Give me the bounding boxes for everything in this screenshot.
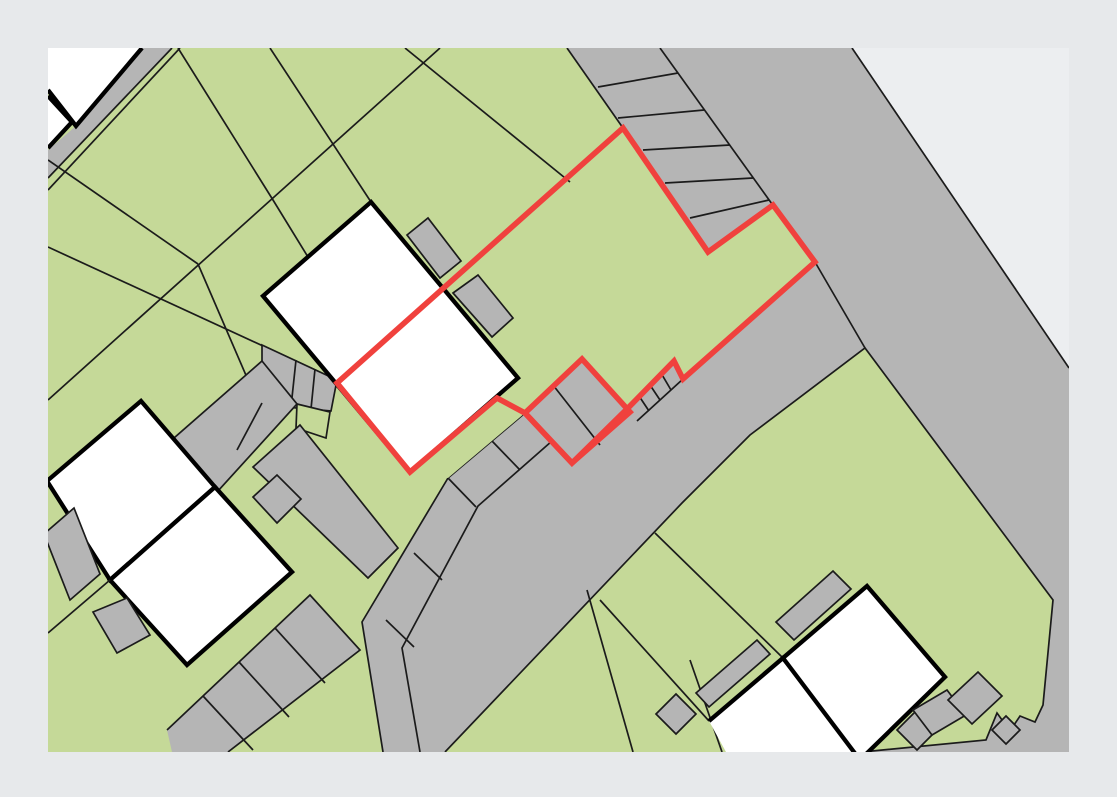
cadastral-map-viewport (0, 0, 1117, 797)
parcel-map-canvas (0, 0, 1117, 797)
map-sheet (44, 48, 1069, 760)
